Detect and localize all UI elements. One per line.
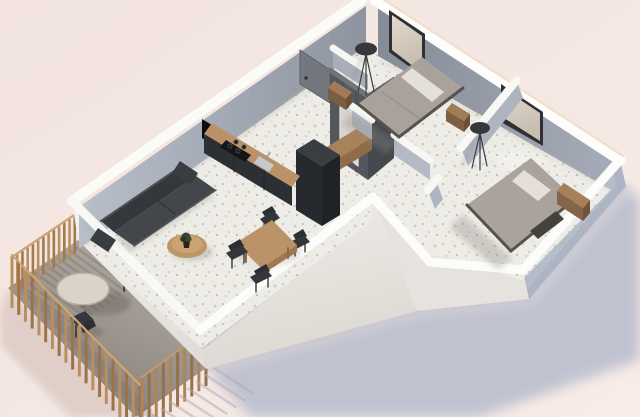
lamp2-shade: [470, 122, 490, 134]
cooktop-burner1: [228, 144, 232, 148]
lamp1-shade: [355, 43, 377, 56]
apartment-3d-render-canvas: [0, 0, 640, 417]
plant-leaf3: [186, 236, 191, 241]
entry-door-handle: [304, 76, 307, 79]
cooktop-burner3: [234, 140, 238, 144]
cooktop-burner2: [236, 149, 240, 153]
cooktop-burner4: [242, 145, 246, 149]
plant-leaf2: [180, 236, 186, 242]
kitchen-tall-unit-side: [322, 155, 340, 226]
floorplan-render: [0, 0, 640, 417]
plant-pot: [183, 241, 190, 248]
